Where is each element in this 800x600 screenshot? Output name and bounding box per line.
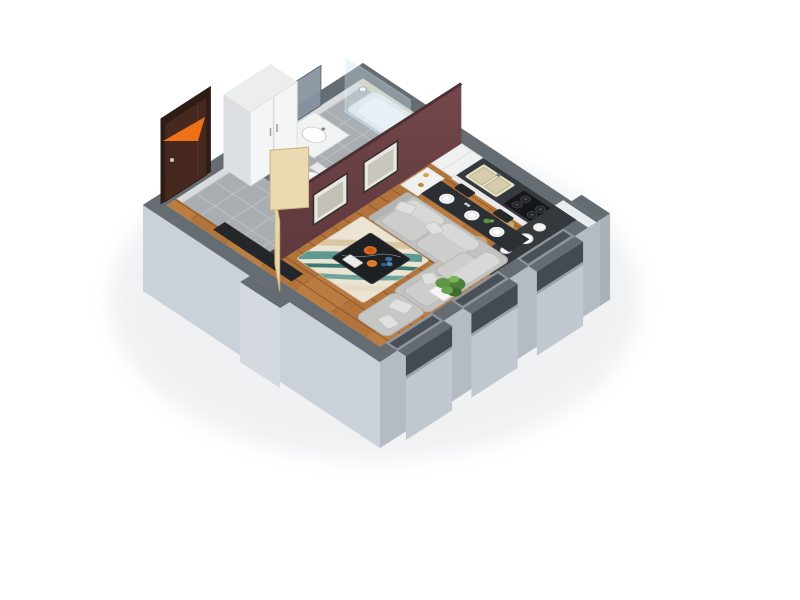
entrance-door-handle	[170, 158, 174, 162]
notch-face	[600, 214, 610, 307]
floor-plan-canvas: 3D isometric render of a studio apartmen…	[0, 0, 800, 600]
floor-plan-render: 3D isometric render of a studio apartmen…	[0, 0, 800, 600]
bathroom-door-leaf	[270, 147, 309, 210]
